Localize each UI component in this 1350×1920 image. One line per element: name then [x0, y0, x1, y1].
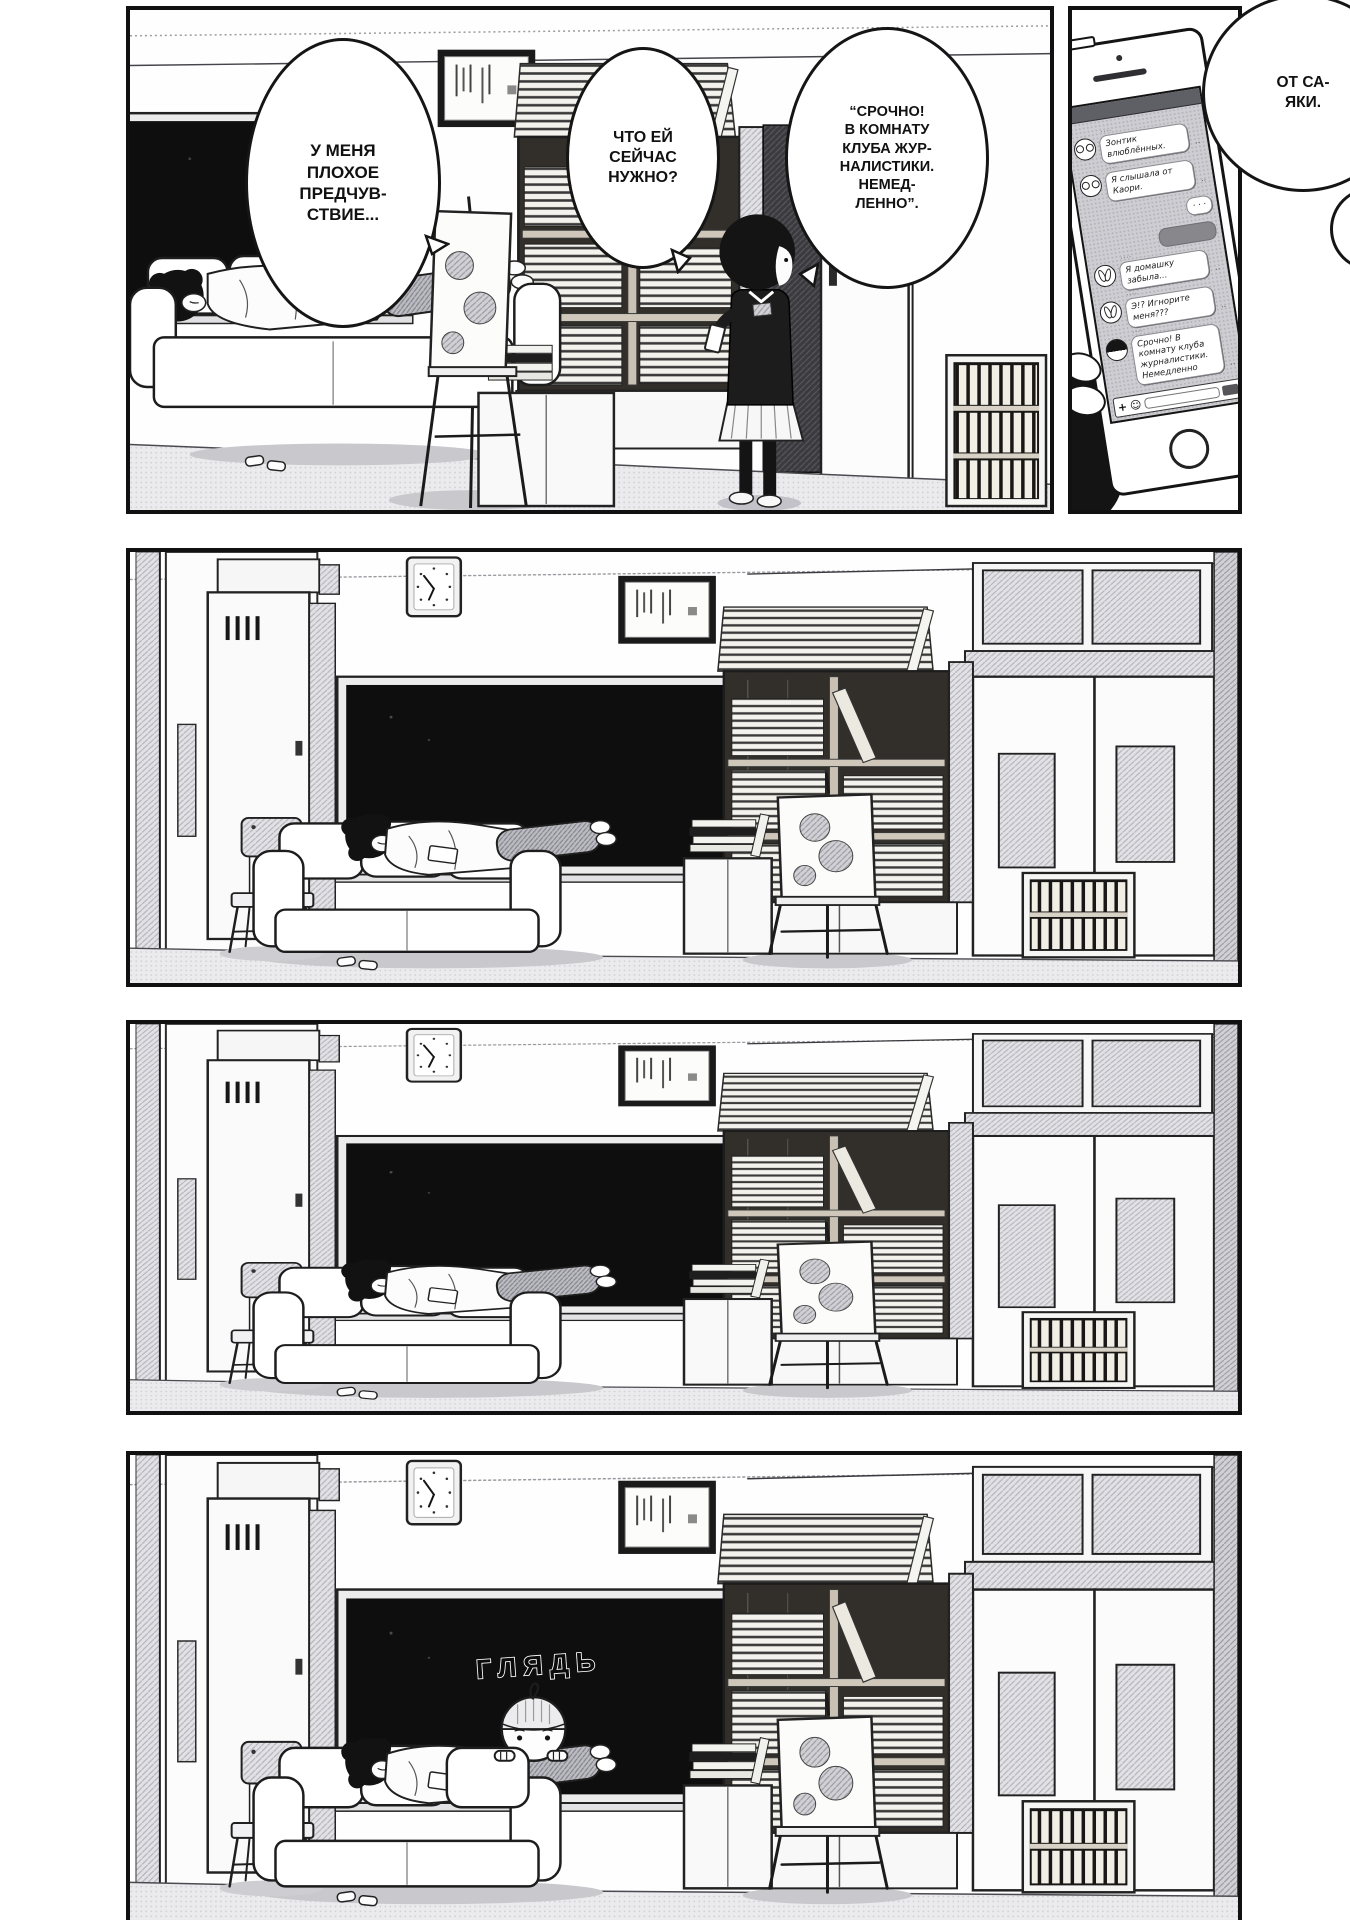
panel-peeking-girl: ГЛЯДЬ	[126, 1451, 1242, 1920]
speech-bubble-sliver	[1330, 187, 1350, 271]
chat-bubble: Зонтик влюблённых.	[1098, 122, 1190, 165]
bunny-ears-avatar-icon	[1098, 300, 1123, 325]
chat-bubble: Срочно! В комнату клуба журналистики. Не…	[1130, 323, 1225, 387]
camera-dot-icon	[1116, 55, 1123, 62]
classroom-view-peek: ГЛЯДЬ	[130, 1455, 1238, 1920]
phone-side-button	[1068, 36, 1096, 53]
dark-bob-hair-avatar-icon	[1104, 337, 1129, 362]
speech-bubble-urgent: “СРОЧНО! В КОМНАТУ КЛУБА ЖУР- НАЛИСТИКИ.…	[785, 27, 989, 289]
earpiece-slit-icon	[1093, 68, 1147, 82]
plus-icon: +	[1117, 401, 1128, 413]
manga-page: Зонтик влюблённых. Я слышала от Каори. ·…	[0, 0, 1350, 1920]
bunny-ears-avatar-icon	[1093, 263, 1118, 288]
speech-bubble-premonition: У МЕНЯ ПЛОХОЕ ПРЕДЧУВ- СТВИЕ...	[245, 38, 441, 328]
classroom-view	[130, 1024, 1238, 1411]
emoji-icon: ☺	[1129, 398, 1142, 411]
home-button-icon	[1166, 426, 1212, 472]
message-list: Зонтик влюблённых. Я слышала от Каори. ·…	[1068, 104, 1242, 401]
speech-bubble-tail	[668, 248, 694, 274]
magazine-shelf	[946, 355, 1046, 506]
redacted-chat-bubble	[1157, 220, 1217, 248]
chat-bubble: · · ·	[1185, 194, 1213, 216]
glasses-avatar-icon	[1073, 137, 1098, 162]
chat-row: Срочно! В комнату клуба журналистики. Не…	[1104, 320, 1238, 390]
panel-empty-clubroom-1	[126, 548, 1242, 987]
classroom-view	[130, 552, 1238, 983]
chat-bubble: Я слышала от Каори.	[1104, 159, 1196, 202]
glasses-avatar-icon	[1078, 174, 1103, 199]
panel-empty-clubroom-2	[126, 1020, 1242, 1415]
send-button	[1222, 384, 1239, 396]
chat-bubble: Я домашку забыла...	[1118, 249, 1210, 292]
chat-bubble: Э!? Игнорите меня???	[1124, 286, 1216, 329]
speech-bubble-tail	[424, 232, 450, 258]
speech-bubble-tail	[796, 262, 822, 288]
speech-bubble-what-now: ЧТО ЕЙ СЕЙЧАС НУЖНО?	[566, 47, 720, 269]
